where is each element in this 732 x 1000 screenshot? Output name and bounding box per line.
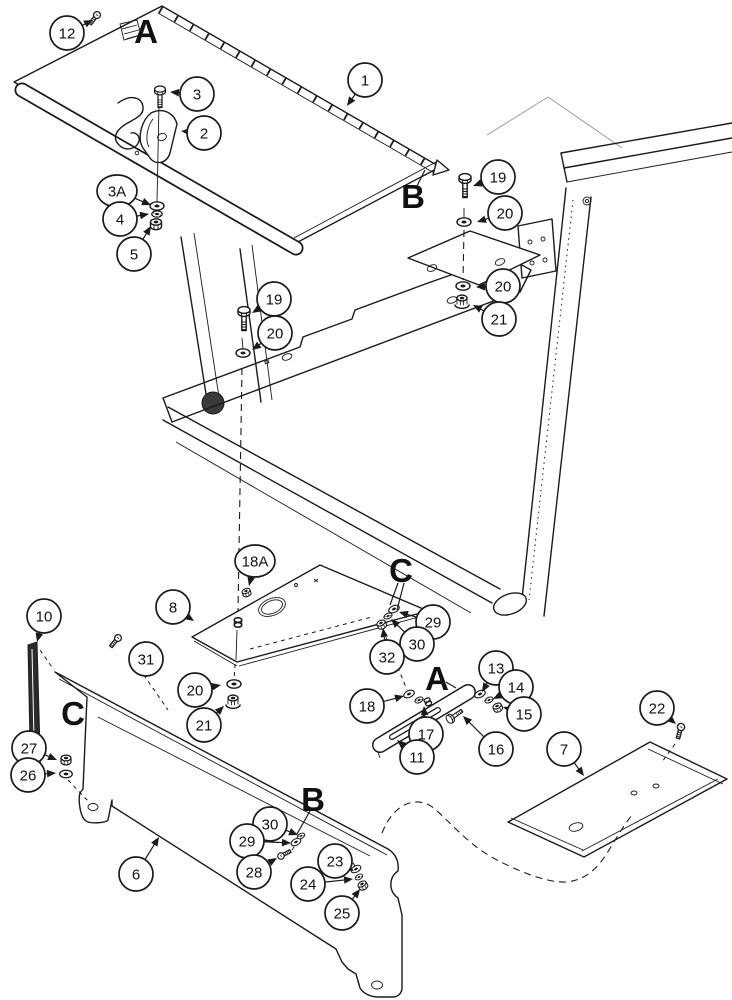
callout-number: 24	[300, 876, 317, 893]
frame-foot	[491, 589, 530, 619]
callout-number: 12	[59, 25, 76, 42]
stud-glyph	[234, 618, 241, 628]
callout-number: 20	[495, 278, 512, 295]
callout-6: 6	[119, 837, 159, 891]
callout-number: 3	[193, 86, 201, 103]
section-letter-C: C	[61, 695, 85, 732]
callout-21: 21	[473, 302, 516, 336]
callout-4: 4	[103, 202, 149, 236]
callout-number: 22	[649, 700, 666, 717]
washer-glyph	[236, 349, 250, 357]
side-panel-6	[55, 672, 402, 997]
callout-number: 19	[490, 169, 507, 186]
flange-glyph	[455, 295, 469, 308]
callout-number: 13	[488, 660, 505, 677]
section-letter-B: B	[401, 178, 425, 215]
parts-diagram: ABCACB 121323A4519201920202118A829303210…	[0, 0, 732, 1000]
callout-26: 26	[11, 758, 56, 792]
callout-1: 1	[347, 63, 382, 106]
section-letter-B: B	[301, 781, 325, 818]
callout-18A: 18A	[235, 545, 275, 586]
screw-glyph	[108, 633, 123, 649]
callout-7: 7	[547, 732, 584, 776]
lock-glyph	[152, 211, 162, 217]
callout-number: 19	[266, 291, 283, 308]
callout-number: 1	[361, 72, 369, 89]
washer-glyph	[227, 680, 241, 688]
callout-number: 20	[267, 325, 284, 342]
callout-number: 2	[200, 125, 208, 142]
nut-glyph	[241, 587, 252, 598]
bolt-glyph	[238, 307, 250, 331]
callout-32: 32	[370, 628, 404, 674]
washer-glyph	[457, 218, 471, 226]
bolt-19-left-axis	[238, 368, 242, 612]
callout-number: 8	[169, 599, 177, 616]
callout-31: 31	[129, 642, 163, 676]
callout-number: 7	[560, 741, 568, 758]
callout-22: 22	[640, 691, 676, 725]
callout-10: 10	[27, 599, 61, 642]
callout-number: 21	[196, 717, 213, 734]
callout-8: 8	[156, 590, 194, 624]
callout-number: 20	[497, 205, 514, 222]
callout-number: 21	[491, 311, 508, 328]
callout-number: 31	[138, 651, 155, 668]
callout-number: 30	[409, 636, 426, 653]
bolt-glyph	[459, 174, 471, 198]
washer-glyph	[150, 202, 164, 210]
callout-number: 15	[516, 706, 533, 723]
callout-number: 27	[21, 740, 38, 757]
screw-glyph	[674, 723, 685, 740]
callout-16: 16	[463, 716, 513, 766]
callout-number: 29	[239, 833, 256, 850]
lock-glyph	[484, 696, 494, 704]
callout-number: 28	[246, 864, 263, 881]
callout-20: 20	[252, 316, 292, 350]
callout-number: 29	[425, 614, 442, 631]
callout-number: 5	[130, 246, 138, 263]
callout-20: 20	[477, 196, 522, 230]
callout-18: 18	[350, 689, 404, 723]
nut-glyph	[61, 755, 71, 765]
callout-number: 3A	[108, 183, 126, 200]
callout-11: 11	[397, 740, 434, 774]
callout-number: 25	[334, 905, 351, 922]
section-letter-C: C	[389, 552, 413, 589]
washer-glyph	[456, 282, 470, 290]
nut-glyph	[151, 219, 162, 230]
washer-glyph	[403, 689, 416, 700]
section-letter-A: A	[425, 660, 449, 697]
callout-number: 6	[132, 866, 140, 883]
callout-number: 10	[36, 608, 53, 625]
nut-glyph	[492, 702, 504, 714]
lock-glyph	[414, 696, 424, 704]
post-bracket	[518, 219, 556, 278]
callout-19: 19	[473, 160, 515, 194]
callout-number: 18	[359, 698, 376, 715]
callout-number: 14	[508, 679, 525, 696]
callout-20: 20	[178, 673, 221, 707]
callout-number: 26	[20, 767, 37, 784]
callout-number: 30	[262, 816, 279, 833]
callout-number: 20	[187, 682, 204, 699]
callout-number: 4	[116, 211, 124, 228]
stud-glyph	[423, 697, 432, 707]
callout-number: 32	[379, 649, 396, 666]
callout-number: 23	[327, 853, 344, 870]
washer-glyph	[60, 770, 73, 778]
section-letter-A: A	[134, 13, 158, 50]
callout-number: 11	[409, 749, 425, 766]
callout-number: 16	[488, 741, 505, 758]
callout-number: 18A	[242, 553, 269, 570]
callout-21: 21	[187, 706, 224, 742]
flange-glyph	[226, 695, 240, 708]
